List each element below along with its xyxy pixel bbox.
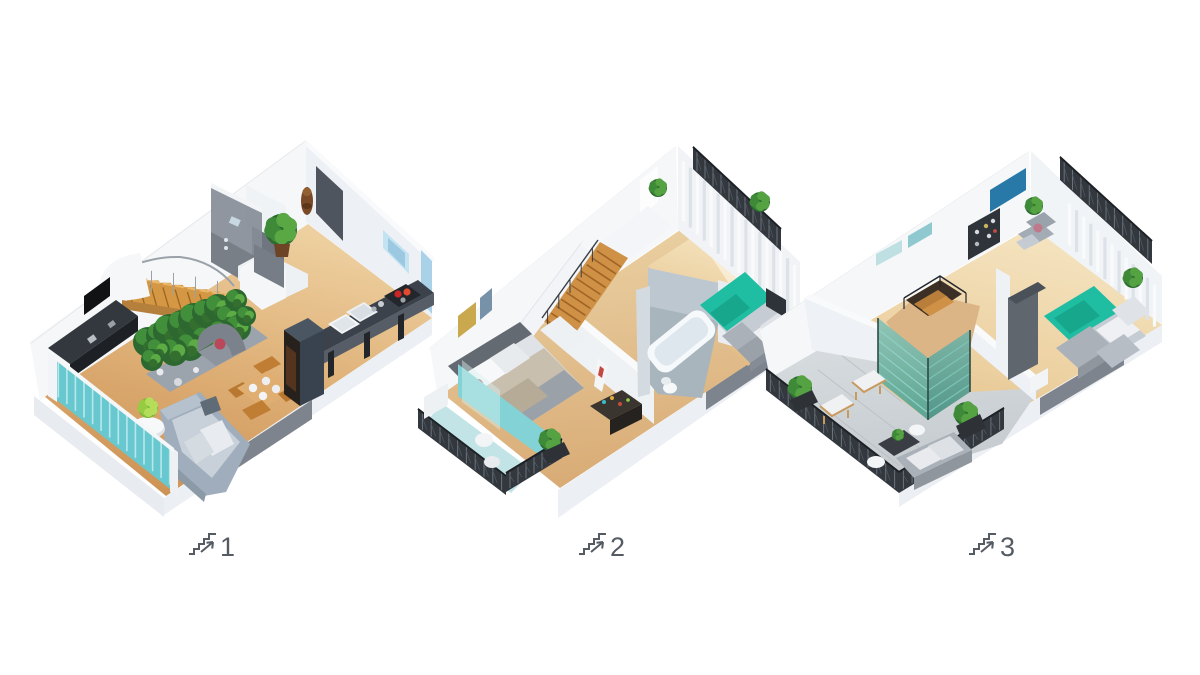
svg-text:3: 3 xyxy=(1000,532,1015,562)
svg-text:1: 1 xyxy=(220,532,235,562)
svg-text:2: 2 xyxy=(610,532,625,562)
